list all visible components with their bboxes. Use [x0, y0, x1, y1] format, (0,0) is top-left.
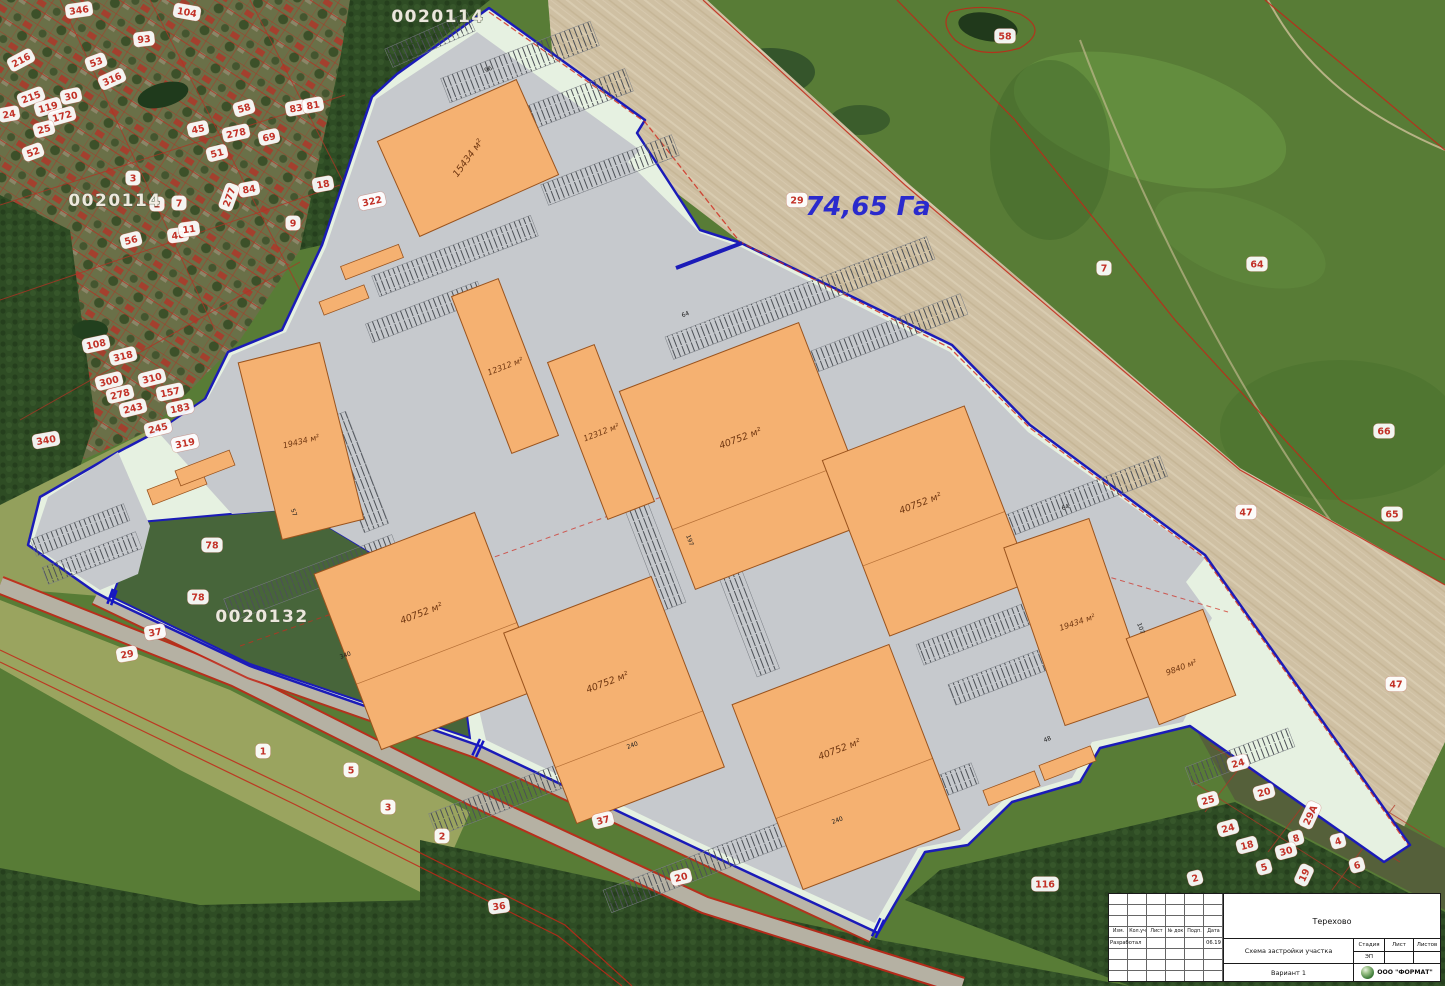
sheet-label: Лист — [1385, 939, 1414, 951]
parcel-number-label: 7 — [1101, 264, 1108, 275]
date-value: 06.19 — [1204, 938, 1223, 948]
parcel-number-label: 29 — [120, 648, 135, 661]
parcel-number-badge: 47 — [1385, 677, 1406, 692]
parcel-number-label: 66 — [1377, 427, 1391, 438]
stage-label: Стадия — [1354, 939, 1385, 951]
developed-by-label: Разработал — [1110, 938, 1150, 948]
parcel-number-badge: 47 — [1235, 505, 1256, 520]
parcel-number-label: 9 — [290, 219, 297, 230]
cadastral-code-label: 0020132 — [215, 607, 308, 627]
parcel-number-label: 93 — [137, 34, 151, 46]
parcel-number-badge: 7 — [171, 196, 186, 211]
parcel-number-badge: 3 — [380, 800, 395, 815]
parcel-number-label: 18 — [316, 178, 331, 191]
parcel-number-badge: 36 — [487, 897, 510, 915]
site-area-label: 74,65 Га — [805, 192, 930, 222]
parcel-number-badge: 1 — [255, 744, 270, 759]
parcel-number-label: 3 — [385, 803, 392, 814]
sheet-value — [1385, 952, 1414, 964]
revision-column-header: Кол.уч — [1128, 927, 1147, 937]
parcel-number-badge: 66 — [1373, 424, 1394, 439]
parcel-number-label: 47 — [1389, 680, 1402, 691]
revision-column-header: Лист — [1147, 927, 1166, 937]
parcel-number-badge: 78 — [187, 590, 208, 605]
parcel-number-label: 58 — [998, 32, 1012, 43]
parcel-number-label: 47 — [1239, 508, 1252, 519]
revision-column-header: Изм. — [1109, 927, 1128, 937]
parcel-number-label: 78 — [191, 593, 205, 604]
variant-label: Вариант 1 — [1224, 964, 1354, 981]
parcel-number-label: 65 — [1385, 510, 1398, 521]
parcel-number-label: 1 — [260, 747, 267, 758]
revision-column-header: Подп. — [1185, 927, 1204, 937]
parcel-number-label: 11 — [182, 224, 197, 237]
site-plan-svg: 15434 м² 19434 м² 12312 м² 12312 м² 4075… — [0, 0, 1445, 986]
project-name: Терехово — [1224, 894, 1440, 939]
parcel-number-label: 64 — [1250, 260, 1264, 271]
format-logo-icon — [1361, 966, 1374, 979]
parcel-number-badge: 116 — [1031, 877, 1059, 892]
revision-column-header: № док — [1166, 927, 1185, 937]
parcel-number-label: 37 — [148, 626, 163, 639]
company-logo-cell: ООО "ФОРМАТ" — [1354, 964, 1440, 981]
drawing-title: Схема застройки участка — [1224, 939, 1354, 963]
parcel-number-label: 7 — [176, 199, 183, 210]
title-block: Изм. Кол.уч Лист № док Подп. Дата Разраб… — [1108, 893, 1441, 982]
stage-value: ЭП — [1354, 952, 1385, 964]
parcel-number-label: 83 — [289, 102, 304, 115]
parcel-number-badge: 93 — [133, 30, 156, 47]
cadastral-code-label: 0020114 — [391, 7, 484, 27]
parcel-number-label: 24 — [2, 108, 17, 121]
parcel-number-badge: 7 — [1096, 261, 1111, 276]
site-plan-canvas: 15434 м² 19434 м² 12312 м² 12312 м² 4075… — [0, 0, 1445, 986]
parcel-number-label: 5 — [348, 766, 355, 777]
sheets-value — [1414, 952, 1440, 964]
parcel-number-badge: 11 — [177, 220, 200, 238]
parcel-number-badge: 58 — [994, 29, 1015, 44]
parcel-number-badge: 64 — [1246, 257, 1267, 272]
revision-column-header: Дата — [1204, 927, 1223, 937]
company-name: ООО "ФОРМАТ" — [1377, 969, 1432, 976]
parcel-number-label: 36 — [492, 901, 507, 914]
parcel-number-label: 81 — [306, 99, 321, 112]
parcel-number-badge: 3 — [125, 171, 140, 186]
parcel-number-badge: 65 — [1381, 507, 1402, 522]
parcel-number-badge: 2 — [434, 829, 449, 844]
cadastral-code-label: 0020114 — [68, 191, 161, 211]
sheets-label: Листов — [1414, 939, 1440, 951]
parcel-number-label: 3 — [130, 174, 137, 185]
parcel-number-label: 2 — [439, 832, 446, 843]
parcel-number-badge: 9 — [285, 216, 300, 231]
parcel-number-badge: 5 — [343, 763, 358, 778]
revision-table: Изм. Кол.уч Лист № док Подп. Дата Разраб… — [1109, 894, 1224, 981]
parcel-number-label: 78 — [205, 541, 219, 552]
parcel-number-label: 84 — [242, 183, 257, 196]
parcel-number-label: 116 — [1035, 880, 1055, 891]
parcel-number-badge: 78 — [201, 538, 222, 553]
parcel-number-label: 29 — [790, 196, 803, 207]
